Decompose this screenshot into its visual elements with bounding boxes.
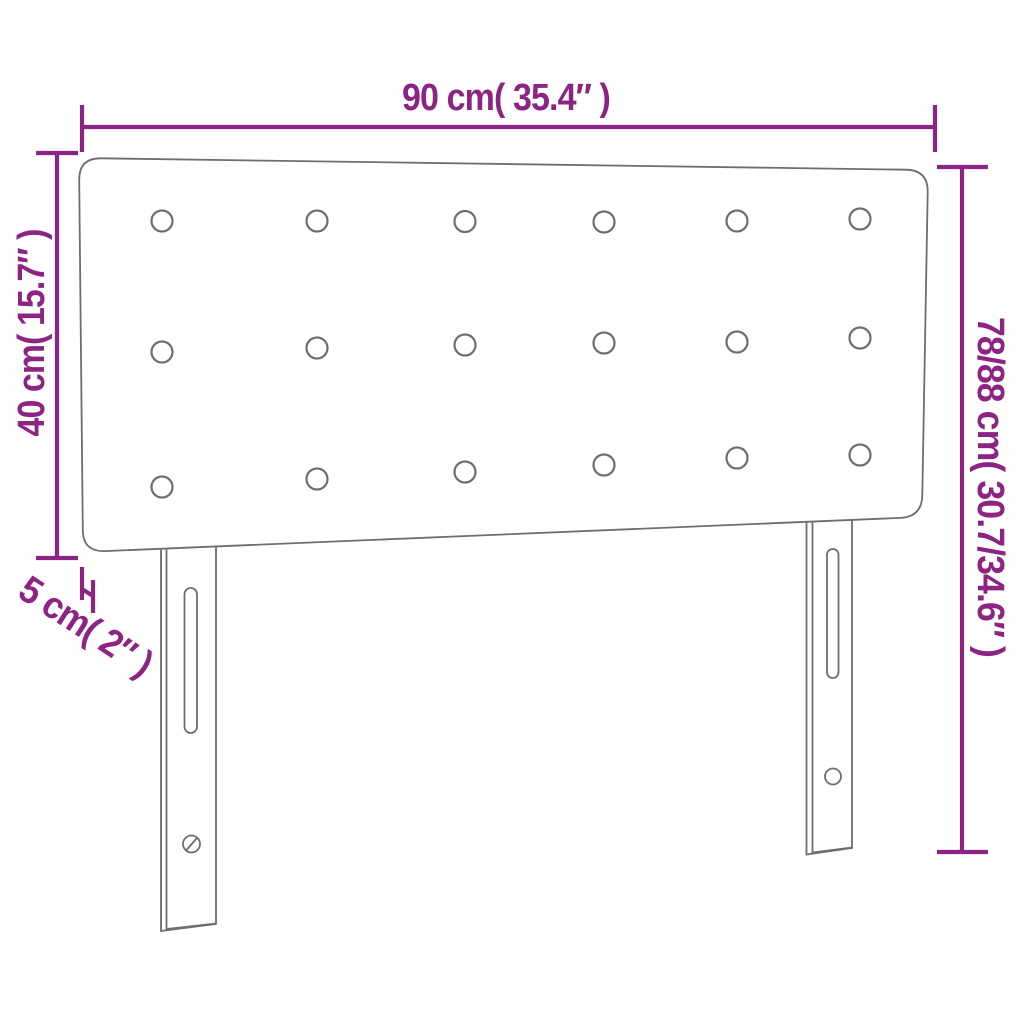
- tufting-button: [850, 445, 871, 466]
- left-leg-front-bottom-edge: [167, 924, 217, 930]
- headboard-drawing: [79, 158, 928, 931]
- right-leg-screw-hole: [825, 769, 841, 785]
- width-dimension-label: 90 cm( 35.4″ ): [402, 77, 610, 119]
- tufting-button: [727, 448, 748, 469]
- tufting-button: [152, 342, 173, 363]
- left-leg: [161, 547, 216, 932]
- tufting-button: [307, 211, 328, 232]
- thickness-dimension-label: 5 cm( 2″ ): [11, 568, 160, 685]
- right-leg-front-bottom-edge: [813, 848, 853, 853]
- tufting-button: [307, 469, 328, 490]
- headboard-panel: [79, 158, 928, 551]
- tufting-button: [455, 211, 476, 232]
- tufting-button: [455, 335, 476, 356]
- tufting-button: [594, 455, 615, 476]
- panel-height-dimension-label: 40 cm( 15.7″ ): [11, 230, 53, 437]
- tufting-button: [850, 328, 871, 349]
- tufting-button: [152, 477, 173, 498]
- total-height-dimension-label: 78/88 cm( 30.7/34.6″ ): [969, 317, 1011, 657]
- tufting-button: [594, 333, 615, 354]
- tufting-button: [727, 332, 748, 353]
- right-leg-slot: [827, 549, 839, 678]
- tufting-button: [850, 209, 871, 230]
- right-leg: [807, 520, 853, 855]
- tufting-button: [307, 338, 328, 359]
- tufting-button: [455, 462, 476, 483]
- tufting-button: [594, 212, 615, 233]
- headboard-dimension-diagram: 90 cm( 35.4″ ) 40 cm( 15.7″ ) 5 cm( 2″ )…: [0, 0, 1024, 1024]
- diagram-canvas: 90 cm( 35.4″ ) 40 cm( 15.7″ ) 5 cm( 2″ )…: [0, 0, 1024, 1024]
- tufting-button: [152, 211, 173, 232]
- left-leg-slot: [185, 588, 198, 733]
- tufting-button: [727, 211, 748, 232]
